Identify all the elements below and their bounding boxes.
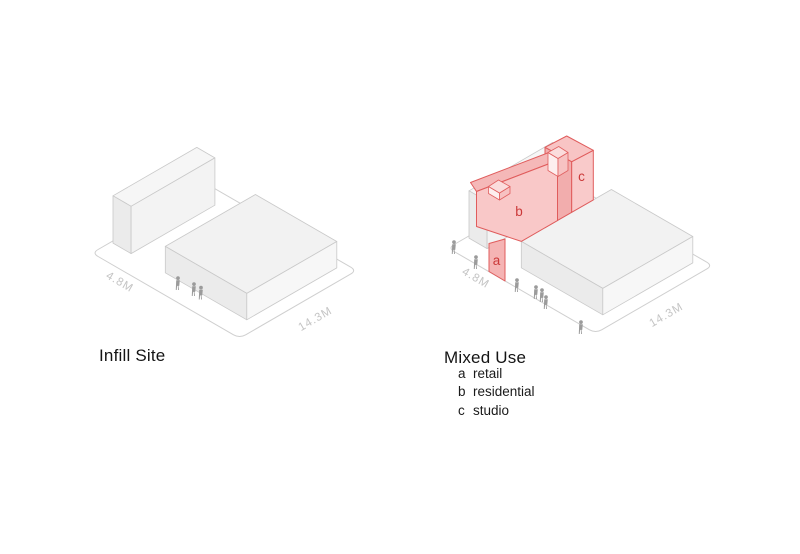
infill-site-diagram: 4.8M 14.3M [95,147,354,336]
legend-key: b [458,383,473,401]
legend-item-studio: c studio [458,402,535,420]
dimension-label-depth: 14.3M [296,305,334,334]
unit-label-c: c [578,169,585,184]
unit-label-b: b [515,204,523,219]
isometric-scene: 4.8M 14.3M [0,0,800,554]
legend-item-residential: b residential [458,383,535,401]
legend-item-retail: a retail [458,365,535,383]
legend-label: studio [473,402,509,420]
roof-courtyard-notch [548,147,568,177]
dimension-label-depth: 14.3M [647,301,685,330]
mixed-use-legend: a retail b residential c studio [458,365,535,420]
legend-label: retail [473,365,502,383]
legend-label: residential [473,383,535,401]
legend-key: a [458,365,473,383]
dimension-label-width: 4.8M [460,266,492,291]
legend-key: c [458,402,473,420]
mixed-use-diagram: a b c 4.8M 14.3M [451,136,710,334]
unit-label-a: a [493,253,501,268]
dimension-label-width: 4.8M [104,270,136,295]
architecture-diagram-canvas: 4.8M 14.3M [0,0,800,554]
infill-site-title: Infill Site [99,346,165,366]
